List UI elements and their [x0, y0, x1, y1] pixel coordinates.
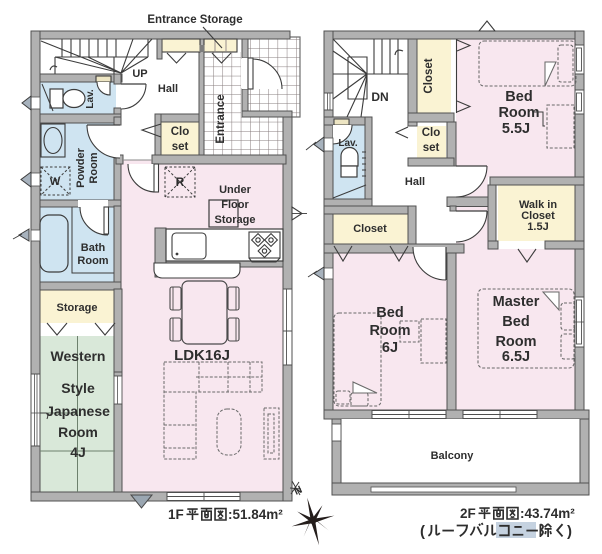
svg-text:Lav.: Lav.: [85, 89, 96, 108]
svg-text:5.5J: 5.5J: [502, 121, 530, 137]
svg-text:(: (: [420, 523, 425, 540]
svg-text:Storage: Storage: [57, 302, 98, 314]
svg-text:Room: Room: [369, 323, 410, 339]
svg-text:Japanese: Japanese: [46, 403, 110, 419]
svg-text:Room: Room: [58, 424, 98, 440]
svg-text:1.5J: 1.5J: [527, 221, 548, 233]
svg-text:): ): [567, 523, 572, 540]
svg-text:1F: 1F: [168, 507, 184, 522]
svg-text:Storage: Storage: [215, 214, 256, 226]
svg-text:Closet: Closet: [353, 223, 387, 235]
svg-text::43.74m²: :43.74m²: [520, 506, 575, 521]
svg-text:Floor: Floor: [221, 199, 249, 211]
svg-text:Powder: Powder: [75, 147, 87, 187]
svg-text:Bed: Bed: [505, 89, 532, 105]
svg-text:set: set: [423, 142, 440, 154]
svg-text:Entrance: Entrance: [215, 94, 227, 143]
svg-text:Under: Under: [219, 184, 252, 196]
svg-text:2F: 2F: [460, 506, 476, 521]
svg-text:LDK16J: LDK16J: [174, 347, 230, 364]
svg-text:Lav.: Lav.: [338, 138, 357, 149]
svg-text:Bed: Bed: [376, 305, 403, 321]
svg-text:Clo: Clo: [422, 127, 441, 139]
svg-text:Room: Room: [498, 105, 539, 121]
svg-text:Room: Room: [495, 334, 536, 350]
svg-text:R: R: [176, 175, 185, 189]
svg-text:Bed: Bed: [502, 314, 529, 330]
svg-text:Hall: Hall: [158, 83, 178, 95]
svg-text:Bath: Bath: [81, 242, 106, 254]
svg-text:6J: 6J: [382, 340, 398, 356]
svg-text:Room: Room: [77, 255, 108, 267]
svg-text:Entrance Storage: Entrance Storage: [147, 14, 242, 26]
svg-text:W: W: [50, 176, 61, 188]
svg-text:Master: Master: [493, 294, 540, 310]
svg-text::51.84m²: :51.84m²: [228, 507, 283, 522]
svg-text:DN: DN: [371, 90, 388, 104]
svg-text:Room: Room: [88, 152, 100, 183]
svg-text:Style: Style: [61, 380, 95, 396]
svg-text:4J: 4J: [70, 444, 86, 460]
svg-text:Balcony: Balcony: [431, 450, 475, 462]
svg-text:UP: UP: [132, 68, 147, 80]
svg-text:Clo: Clo: [171, 126, 190, 138]
svg-text:set: set: [172, 141, 189, 153]
svg-text:6.5J: 6.5J: [502, 349, 530, 365]
svg-text:Closet: Closet: [423, 58, 435, 93]
svg-text:Hall: Hall: [405, 176, 425, 188]
svg-text:Western: Western: [51, 348, 106, 364]
